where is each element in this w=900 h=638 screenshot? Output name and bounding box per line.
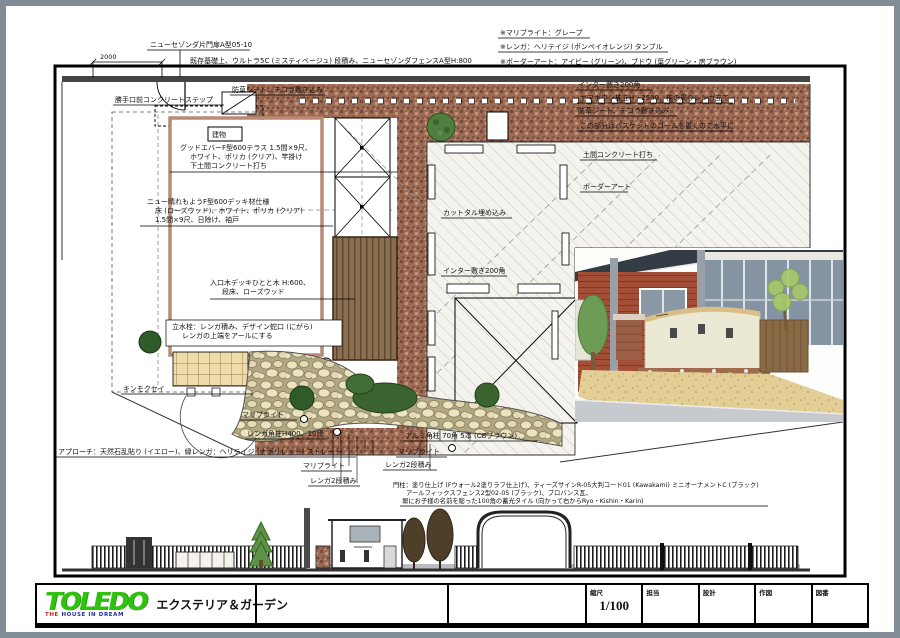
- tall-post: [304, 508, 310, 568]
- field-scale: 縮尺 1/100: [585, 585, 641, 623]
- tagline-rest: HOUSE IN DREAM: [61, 612, 124, 618]
- dim-label: 2000: [100, 53, 117, 61]
- ann-weed-top: 防草シート、テコラ敷き込み: [232, 85, 323, 94]
- shrub: [290, 386, 314, 410]
- ann-inter-center: インター敷き200角: [443, 266, 505, 275]
- ann-terrace1: グッドエバーF型600テラス 1.5間×9尺、: [180, 143, 312, 152]
- ann-deck1: ニュー晴れもようF型600デッキ材仕様: [147, 197, 269, 206]
- ann-kinmokusei: キンモクセイ: [123, 385, 165, 393]
- ann-deck3: 1.5間×9尺、日除け、袖戸: [155, 215, 239, 224]
- ann-marib-1: マリブライト: [242, 410, 284, 419]
- render-curved-wall: [645, 309, 760, 370]
- ann-gate-block-3: 塀にお子様の名前を彫った100角の蓄光タイル (向かって右からRyo・Kishi…: [402, 496, 644, 505]
- ann-brick2-b: レンガ2段積み: [385, 460, 431, 469]
- title-block: TOLEDO THE HOUSE IN DREAM エクステリア＆ガーデン 縮尺…: [35, 583, 869, 628]
- field-tanto-label: 担当: [646, 587, 659, 597]
- elevation-gate: [126, 537, 152, 568]
- field-scale-value: 1/100: [587, 598, 641, 614]
- ann-approach: アプローチ：天然石乱貼り (イエロー)、縁レンガ：ヘリテイジ (ナポリレッド) …: [58, 447, 342, 456]
- ann-alum: アルミ角柱 70角 5本 (CBブラウン): [405, 431, 517, 440]
- ann-tap2: レンガの上端をアールにする: [182, 331, 273, 340]
- entrance-deck: [173, 352, 248, 386]
- ann-brick2-a: レンガ2段積み: [310, 476, 356, 485]
- ann-entry1: 入口木デッキひとと木 H:600、: [210, 278, 310, 287]
- ann-gate: ニューセゾンダ片門扉A型05-10: [150, 40, 252, 49]
- render-brick-pillar: [616, 318, 642, 360]
- drawing-sheet: { "colors": { "page_border": "#828c96", …: [0, 0, 900, 638]
- ann-terrace3: 下土間コンクリート打ち: [190, 161, 267, 170]
- ann-building: 建物: [212, 130, 226, 139]
- plan-drawing: 2000: [0, 0, 900, 638]
- ann-doma: 土間コンクリート打ち: [583, 150, 653, 159]
- ann-weed-right: 防草シート、テコラ敷き込み: [578, 106, 669, 115]
- ann-note-border: ※ボーダーアート：アイビー (グリーン)、ブドウ (葉グリーン・房ブラウン): [500, 57, 737, 66]
- ann-fence-top: 既存基礎上、ウルトラ5C (ミスティベージュ) 段積み、ニューセゾンダフェンスA…: [190, 56, 472, 65]
- ann-deck2: 床 (ローズウッド)、ホワイト、ポリカ (クリア): [155, 206, 303, 215]
- ann-note-brick: ※レンガ：ヘリテイジ (ポンペイオレンジ) タンブル: [500, 42, 663, 51]
- gate-pillar-structure: [328, 520, 406, 568]
- arch-gate: [478, 512, 570, 568]
- ann-yamaboushi: ヤマボウシ株立H：2500、株の周りレンガ立て: [580, 93, 729, 102]
- yamaboushi-tree: [427, 113, 455, 141]
- ann-tap1: 立水栓：レンガ積み、デザイン蛇口 (にがら): [172, 322, 313, 331]
- ann-marib-3: マリブライト: [398, 447, 440, 456]
- wood-deck: [333, 237, 397, 360]
- title-block-logo-cell: TOLEDO THE HOUSE IN DREAM エクステリア＆ガーデン: [37, 585, 255, 623]
- field-zuban-label: 図番: [816, 587, 829, 597]
- slat-fence-right: [574, 546, 798, 568]
- shrub: [475, 383, 499, 407]
- ann-inter-right: インター敷き200角: [578, 80, 640, 89]
- existing-wall: [62, 76, 810, 82]
- ann-step: 勝手口前コンクリートステップ: [115, 95, 213, 104]
- brick-pillar-elev: [316, 546, 330, 568]
- render-tree: [578, 295, 608, 355]
- ann-border-art: ボーダーアート: [583, 182, 631, 191]
- ann-terrace2: ホワイト、ポリカ (クリア)、竿掛け: [190, 152, 303, 161]
- ann-cuttal: カットタル埋め込み: [443, 208, 506, 217]
- field-sekkei-label: 設計: [703, 587, 716, 597]
- ann-note-marib: ※マリブライト：グレープ: [500, 28, 582, 37]
- ann-brick-post: レンガ角柱H400、10段: [247, 429, 324, 438]
- ann-entry2: 段床、ローズウッド: [222, 287, 285, 296]
- ann-marib-2: マリブライト: [303, 461, 345, 470]
- field-scale-label: 縮尺: [590, 587, 603, 597]
- field-sakuzu-label: 作図: [759, 587, 772, 597]
- ann-gate-block-2: アールフィックスフェンス2型02-05 (ブラック)、プロバンス瓦、: [406, 488, 592, 497]
- kinmokusei-tree: [139, 331, 161, 353]
- field-sekkei: 設計: [698, 585, 754, 623]
- field-tanto: 担当: [641, 585, 697, 623]
- field-sakuzu: 作図: [754, 585, 810, 623]
- house-3d-render: [575, 248, 843, 422]
- brick-pillar-plan: [487, 112, 508, 140]
- field-zuban: 図番: [811, 585, 867, 623]
- title-block-empty-1: [255, 585, 447, 623]
- block-wall: [176, 552, 234, 568]
- ann-basket: この部分はバスケットのゴールを置くので水平に: [580, 121, 734, 130]
- title-block-empty-2: [447, 585, 585, 623]
- ann-gate-block-1: 門柱：塗り仕上げ (Fウォール2塗りラフ仕上げ)、ティーズサインR-05大判コー…: [393, 480, 759, 489]
- tagline-word1: THE: [45, 612, 59, 618]
